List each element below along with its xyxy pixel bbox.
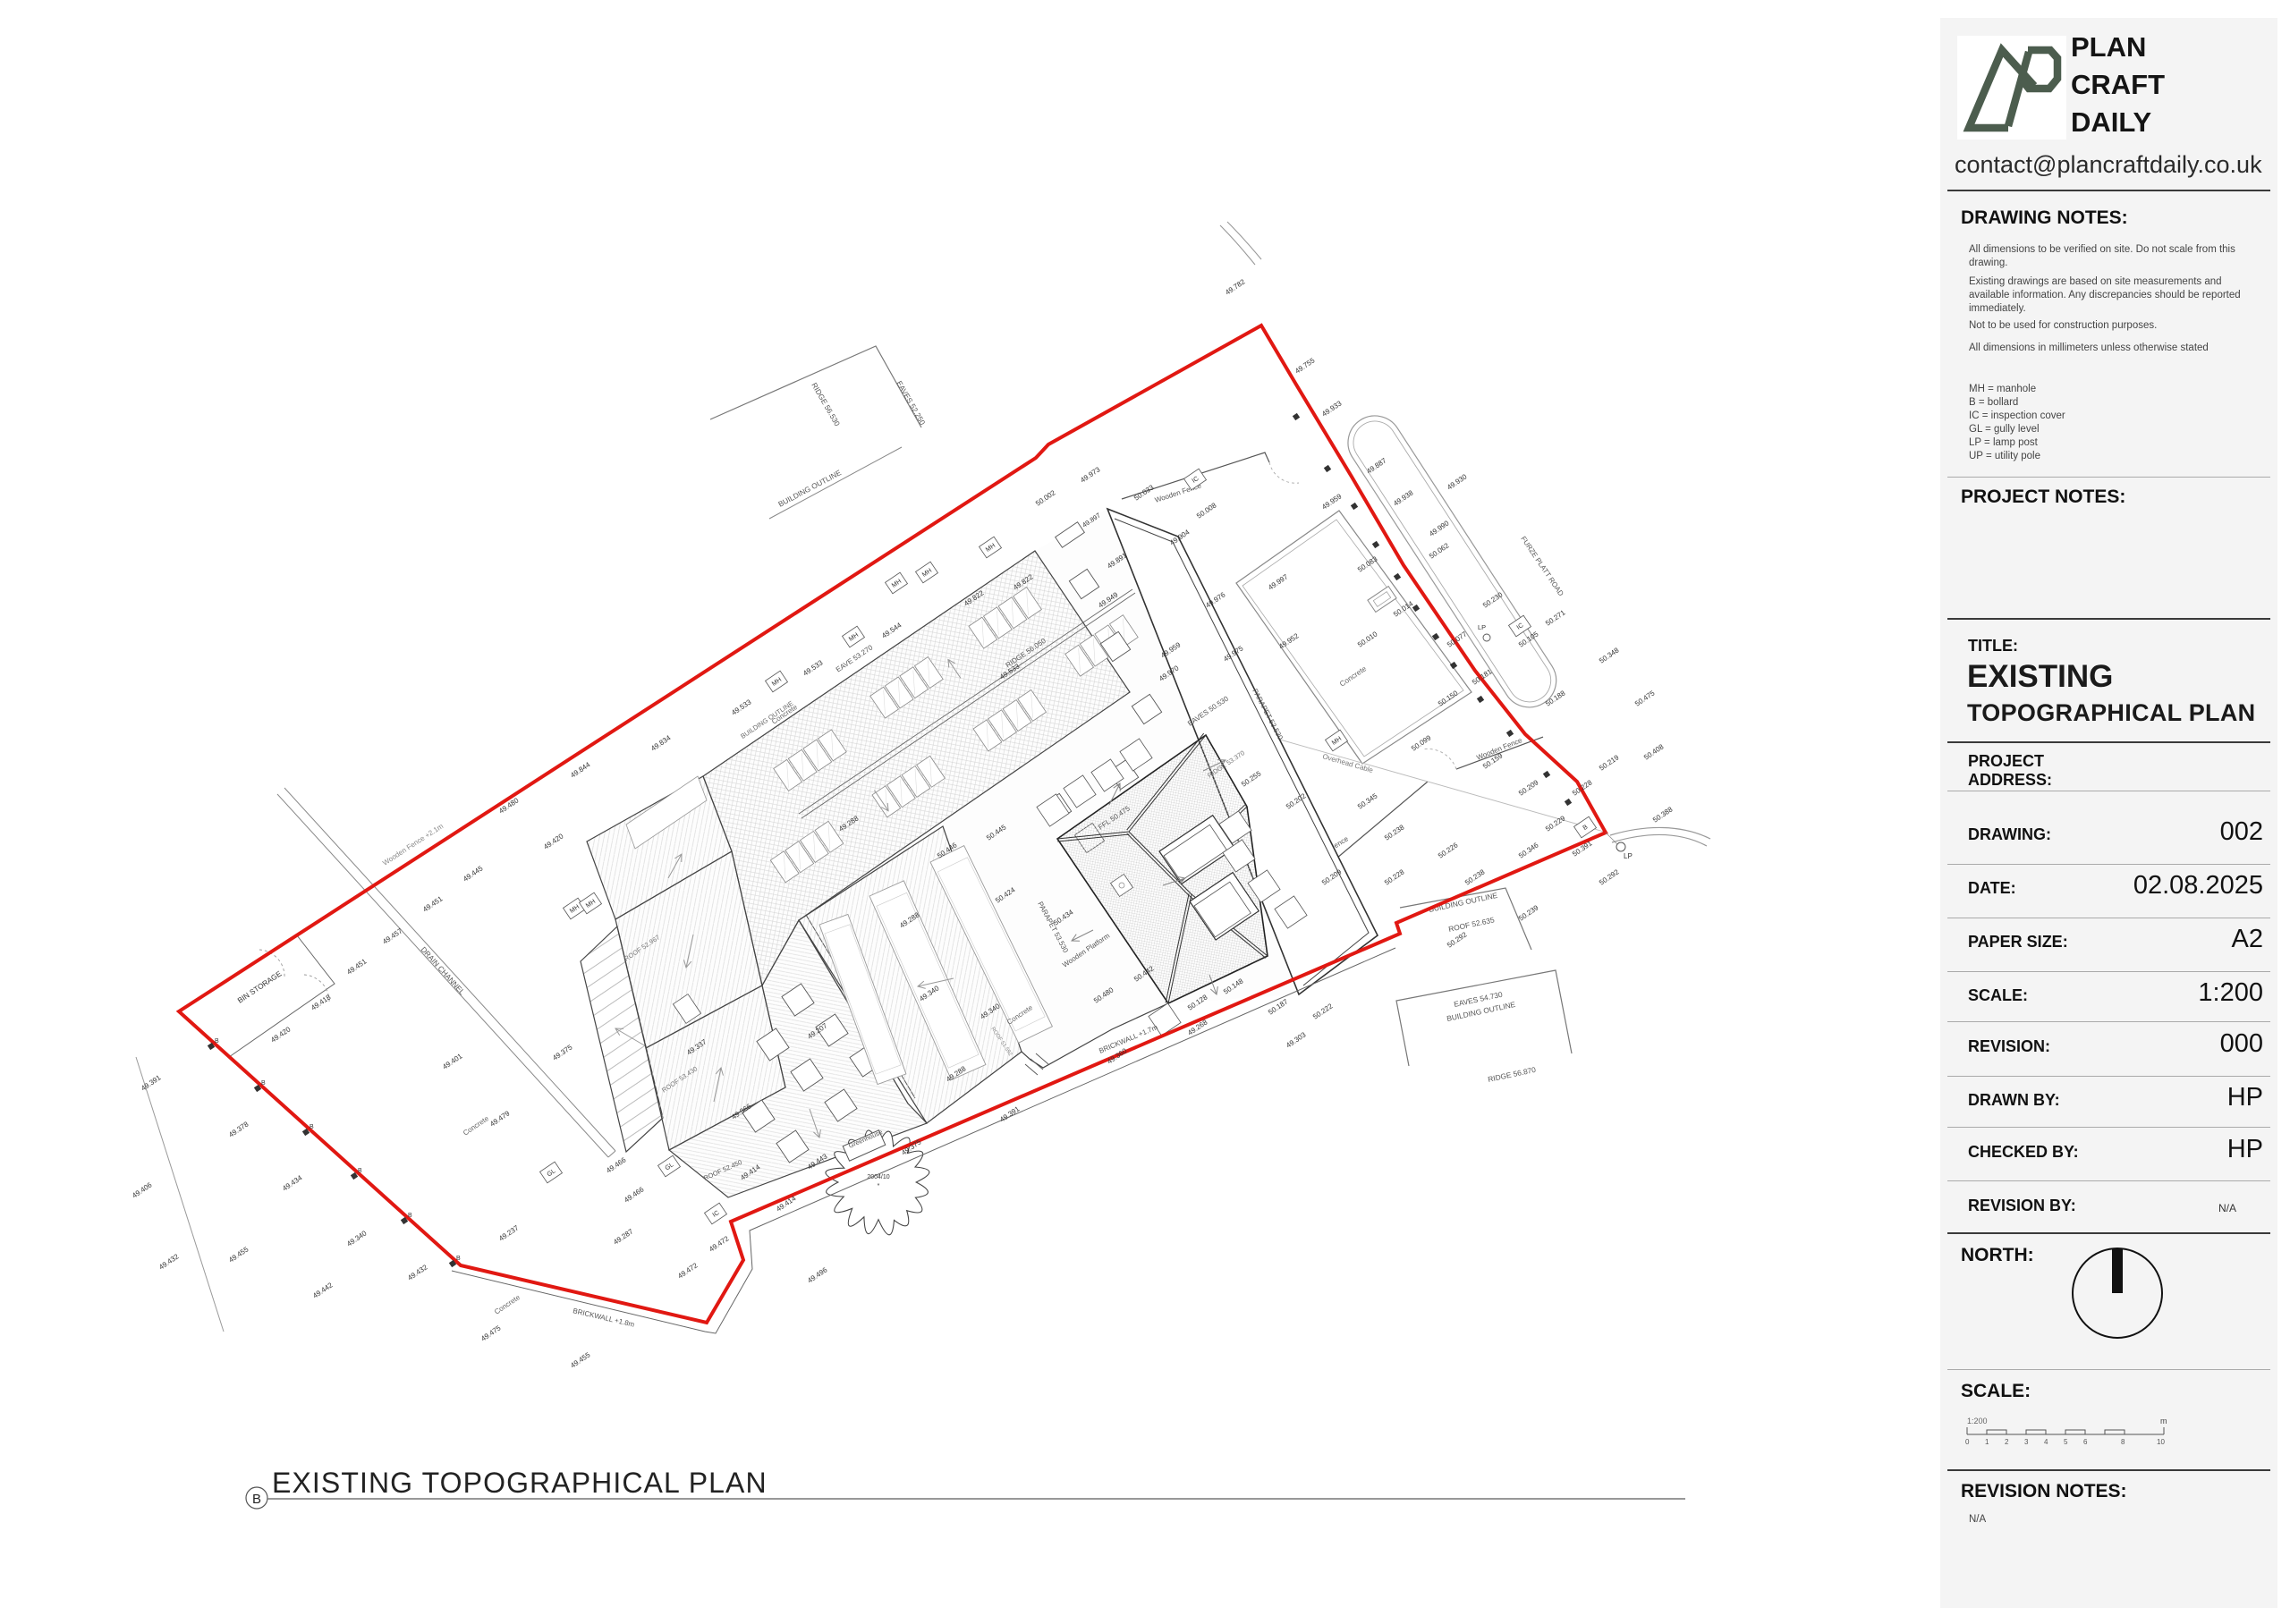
svg-text:49.378: 49.378 <box>227 1120 250 1138</box>
svg-text:49.533: 49.533 <box>730 698 753 716</box>
svg-text:50.475: 50.475 <box>1633 689 1657 707</box>
svg-text:RIDGE 56.870: RIDGE 56.870 <box>1487 1065 1537 1084</box>
svg-text:B: B <box>358 1168 362 1174</box>
svg-text:B: B <box>310 1124 314 1130</box>
svg-text:B: B <box>215 1038 219 1045</box>
svg-text:49.472: 49.472 <box>708 1234 731 1253</box>
svg-text:B: B <box>456 1256 461 1262</box>
svg-text:4: 4 <box>2044 1438 2048 1446</box>
svg-text:10: 10 <box>2157 1438 2165 1446</box>
svg-text:m: m <box>2160 1417 2167 1425</box>
svg-text:RIDGE 56.530: RIDGE 56.530 <box>810 381 842 427</box>
svg-text:1: 1 <box>1985 1438 1989 1446</box>
svg-text:49.455: 49.455 <box>227 1245 250 1264</box>
svg-text:49.418: 49.418 <box>310 993 333 1011</box>
svg-text:50.388: 50.388 <box>1651 805 1675 824</box>
svg-text:49.340: 49.340 <box>345 1229 369 1248</box>
svg-text:49.391: 49.391 <box>140 1073 163 1092</box>
svg-text:49.434: 49.434 <box>281 1173 304 1192</box>
svg-text:49.406: 49.406 <box>131 1180 154 1199</box>
svg-text:50.008: 50.008 <box>1195 501 1218 520</box>
svg-text:BRICKWALL +1.8m: BRICKWALL +1.8m <box>572 1307 636 1329</box>
svg-text:49.479: 49.479 <box>488 1109 512 1128</box>
svg-text:49.933: 49.933 <box>1320 399 1344 418</box>
svg-text:49.466: 49.466 <box>605 1155 628 1174</box>
svg-text:Concrete: Concrete <box>493 1293 522 1316</box>
svg-text:50.229: 50.229 <box>1544 814 1567 833</box>
svg-text:49.287: 49.287 <box>612 1227 635 1246</box>
svg-text:50.187: 50.187 <box>1267 997 1290 1016</box>
svg-text:LP: LP <box>1478 623 1486 631</box>
svg-text:DRAIN CHANNEL: DRAIN CHANNEL <box>420 945 467 997</box>
svg-text:6: 6 <box>2083 1438 2088 1446</box>
svg-text:B: B <box>252 1492 261 1507</box>
svg-text:ROOF 52.635: ROOF 52.635 <box>1447 915 1495 934</box>
svg-text:49.533: 49.533 <box>801 658 825 677</box>
svg-text:50.346: 50.346 <box>1517 841 1540 859</box>
svg-text:50.222: 50.222 <box>1311 1002 1335 1020</box>
svg-text:49.432: 49.432 <box>406 1263 429 1281</box>
svg-text:49.834: 49.834 <box>649 733 673 752</box>
svg-text:49.442: 49.442 <box>311 1281 335 1299</box>
svg-text:49.455: 49.455 <box>569 1350 592 1369</box>
svg-text:B: B <box>408 1213 412 1219</box>
svg-text:49.445: 49.445 <box>462 864 485 883</box>
svg-text:1:200: 1:200 <box>1967 1417 1988 1425</box>
svg-text:49.451: 49.451 <box>421 894 445 913</box>
svg-text:49.990: 49.990 <box>1428 519 1451 537</box>
svg-text:49.466: 49.466 <box>623 1185 646 1204</box>
svg-text:50.238: 50.238 <box>1383 823 1406 842</box>
svg-text:49.755: 49.755 <box>1293 356 1317 375</box>
svg-text:50.348: 50.348 <box>1598 646 1621 664</box>
svg-text:49.457: 49.457 <box>381 926 404 945</box>
svg-text:49.973: 49.973 <box>1079 465 1102 484</box>
svg-text:49.782: 49.782 <box>1224 277 1247 296</box>
svg-text:50.033: 50.033 <box>1132 483 1156 502</box>
svg-text:50.345: 50.345 <box>1356 791 1379 810</box>
svg-text:3: 3 <box>2024 1438 2029 1446</box>
svg-text:50.209: 50.209 <box>1517 778 1540 797</box>
svg-text:*: * <box>878 1183 880 1189</box>
svg-text:49.844: 49.844 <box>569 760 592 779</box>
svg-text:8: 8 <box>2121 1438 2125 1446</box>
svg-text:5: 5 <box>2064 1438 2068 1446</box>
svg-text:50.062: 50.062 <box>1428 541 1451 560</box>
svg-text:49.544: 49.544 <box>880 621 903 639</box>
svg-text:49.432: 49.432 <box>157 1252 181 1271</box>
svg-text:49.472: 49.472 <box>676 1261 700 1280</box>
svg-text:49.496: 49.496 <box>806 1265 829 1284</box>
svg-text:50.271: 50.271 <box>1544 608 1567 627</box>
svg-text:0: 0 <box>1965 1438 1970 1446</box>
svg-text:49.375: 49.375 <box>551 1043 574 1062</box>
svg-text:50.292: 50.292 <box>1598 867 1621 886</box>
svg-text:49.959: 49.959 <box>1320 492 1344 511</box>
svg-text:50.226: 50.226 <box>1437 841 1460 859</box>
svg-text:49.303: 49.303 <box>1285 1030 1308 1049</box>
svg-text:49.237: 49.237 <box>497 1223 521 1242</box>
svg-text:49.451: 49.451 <box>345 957 369 976</box>
svg-text:EAVES 52.250: EAVES 52.250 <box>895 379 927 427</box>
svg-text:EXISTING TOPOGRAPHICAL PLAN: EXISTING TOPOGRAPHICAL PLAN <box>272 1467 768 1499</box>
svg-text:49.475: 49.475 <box>479 1324 503 1342</box>
svg-text:50.408: 50.408 <box>1642 742 1666 761</box>
svg-text:BUILDING OUTLINE: BUILDING OUTLINE <box>776 468 843 509</box>
svg-text:49.391: 49.391 <box>998 1104 1022 1123</box>
svg-text:50.230: 50.230 <box>1481 590 1505 609</box>
svg-text:49.938: 49.938 <box>1392 488 1415 507</box>
svg-text:49.420: 49.420 <box>542 832 565 850</box>
svg-text:50.002: 50.002 <box>1034 488 1057 507</box>
svg-text:49.930: 49.930 <box>1446 472 1469 491</box>
svg-text:Concrete: Concrete <box>462 1114 490 1138</box>
svg-text:50.219: 50.219 <box>1598 753 1621 772</box>
svg-text:2: 2 <box>2005 1438 2009 1446</box>
svg-text:B: B <box>261 1080 266 1087</box>
svg-text:50.228: 50.228 <box>1383 867 1406 886</box>
svg-text:50.099: 50.099 <box>1410 733 1433 752</box>
svg-text:BIN STORAGE: BIN STORAGE <box>236 968 284 1004</box>
svg-text:50.239: 50.239 <box>1517 903 1540 922</box>
svg-text:49.401: 49.401 <box>441 1052 464 1070</box>
svg-text:49.976: 49.976 <box>1204 590 1227 609</box>
svg-text:49.887: 49.887 <box>1365 456 1388 475</box>
svg-text:FURZE PLATT ROAD: FURZE PLATT ROAD <box>1519 535 1565 597</box>
svg-text:49.420: 49.420 <box>269 1025 293 1044</box>
svg-text:LP: LP <box>1624 852 1633 860</box>
